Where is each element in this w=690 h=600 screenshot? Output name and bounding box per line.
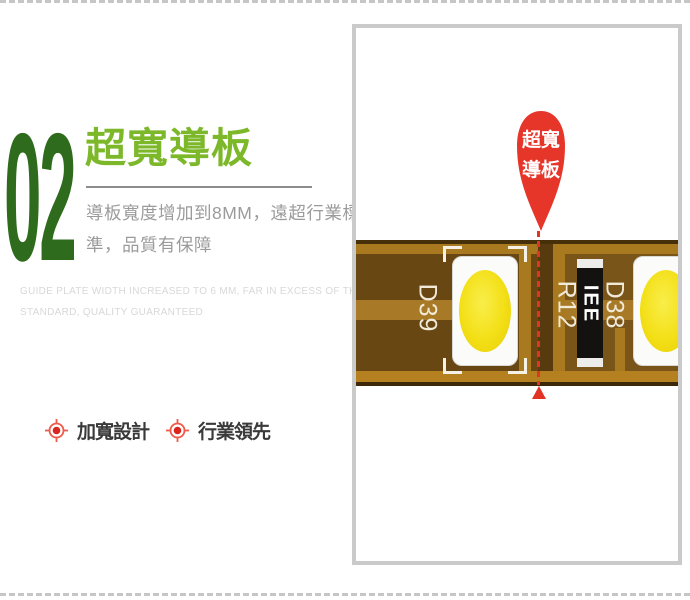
target-icon	[44, 418, 69, 443]
bullet-label: 加寬設計	[77, 417, 149, 444]
feature-text-column: 02 超寬導板 導板寬度增加到8MM，遠超行業標 準，品質有保障 GUIDE P…	[0, 0, 345, 600]
bullet-item-industry-leading: 行業領先	[165, 417, 270, 443]
feature-number: 02	[4, 106, 74, 288]
pcb-label-d38: D38	[600, 281, 629, 330]
callout-dashed-line	[537, 231, 540, 385]
led-dome-left	[459, 270, 511, 352]
pcb-label-d39: D39	[413, 284, 442, 333]
pcb-top-edge	[356, 240, 678, 244]
resistor-component: IEE	[577, 259, 603, 367]
bottom-dashed-divider	[0, 593, 690, 596]
resistor-marking: IEE	[579, 285, 602, 323]
description-line-2: 準，品質有保障	[86, 229, 360, 261]
description-line-1: 導板寬度增加到8MM，遠超行業標	[86, 197, 360, 229]
pcb-trace-under-d38	[615, 328, 625, 371]
bullet-item-wide-design: 加寬設計	[44, 417, 149, 443]
feature-banner: 02 超寬導板 導板寬度增加到8MM，遠超行業標 準，品質有保障 GUIDE P…	[0, 0, 690, 600]
target-icon	[165, 418, 190, 443]
product-image-panel: D39 R12 D38 IEE 超寬 導板	[352, 24, 682, 565]
callout-arrowhead-icon	[532, 386, 546, 399]
pcb-bottom-edge	[356, 382, 678, 386]
callout-text-line-2: 導板	[522, 158, 561, 181]
callout-text-line-1: 超寬	[521, 128, 560, 151]
led-strip-pcb: D39 R12 D38 IEE	[356, 240, 678, 386]
title-divider-line	[86, 186, 312, 188]
feature-description: 導板寬度增加到8MM，遠超行業標 準，品質有保障	[86, 197, 360, 261]
callout-pin-icon: 超寬 導板	[515, 108, 567, 232]
pcb-led-solder-pad	[519, 254, 531, 371]
feature-title: 超寬導板	[85, 127, 253, 170]
bullet-label: 行業領先	[198, 417, 270, 444]
